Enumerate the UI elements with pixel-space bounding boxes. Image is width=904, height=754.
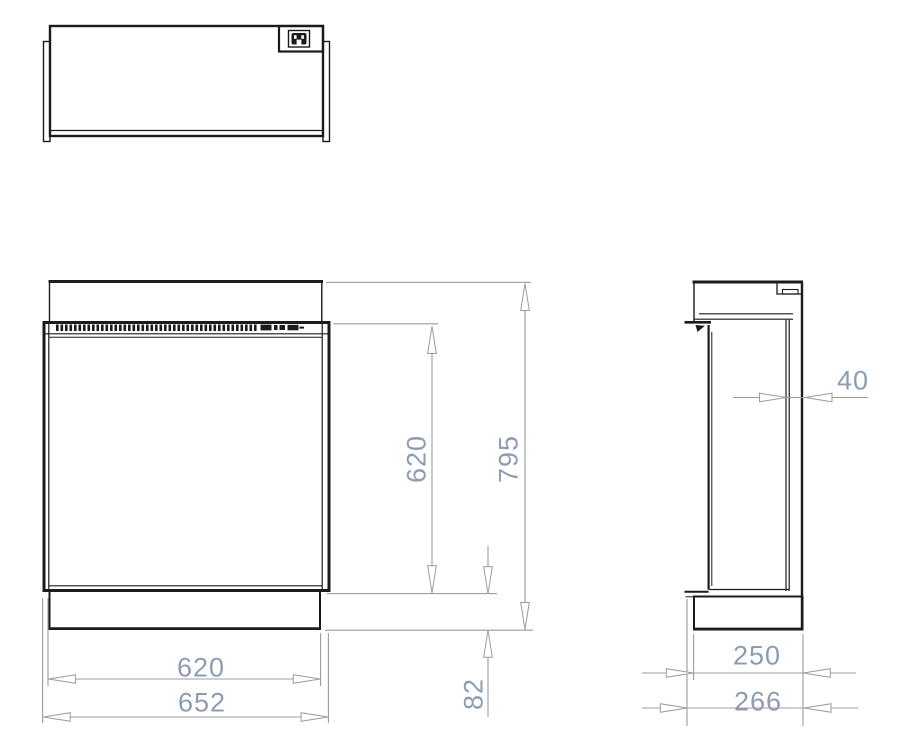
front-view — [44, 282, 329, 630]
dim-front-width-outer: 652 — [178, 690, 226, 717]
front-outer-frame — [44, 323, 329, 591]
dim-side-depth-outer: 266 — [734, 689, 782, 716]
vent-grille — [44, 325, 329, 338]
dim-side-depth-inner: 250 — [733, 643, 781, 670]
control-display — [288, 325, 299, 331]
dim-front-glass-height: 620 — [404, 435, 431, 483]
top-view-body — [50, 26, 323, 136]
side-view — [685, 282, 804, 630]
dim-base-height: 82 — [461, 678, 488, 710]
side-rear-notch — [777, 282, 802, 294]
drawing-page: 620 795 82 620 652 40 250 266 — [0, 0, 904, 754]
dim-front-total-height: 795 — [496, 435, 523, 483]
control-switch — [261, 325, 272, 331]
front-base — [50, 591, 321, 630]
lip-detail — [696, 325, 706, 332]
side-base — [694, 597, 803, 630]
top-view — [44, 26, 330, 142]
dim-side-rear-gap: 40 — [837, 368, 869, 395]
dim-front-width-inner: 620 — [177, 655, 225, 682]
power-inlet-icon — [289, 31, 310, 48]
